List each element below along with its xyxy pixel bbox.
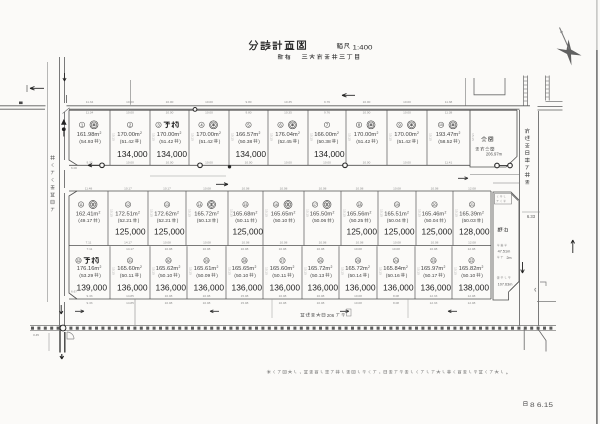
svg-text:15.15: 15.15 (418, 209, 422, 217)
svg-text:11.38: 11.38 (445, 100, 453, 104)
svg-text:15.15: 15.15 (417, 267, 421, 275)
svg-text:15.15: 15.15 (270, 133, 274, 141)
svg-text:10.00: 10.00 (205, 160, 213, 164)
svg-text:12.08: 12.08 (468, 187, 476, 191)
svg-text:(50.03: (50.03 (462, 218, 476, 224)
svg-text:(50.04: (50.04 (387, 218, 401, 224)
svg-text:(53.29: (53.29 (79, 273, 93, 279)
svg-text:2: 2 (180, 131, 182, 135)
svg-text:2: 2 (293, 265, 295, 269)
svg-text:170.00m: 170.00m (354, 132, 377, 138)
svg-text:10.00: 10.00 (166, 111, 174, 115)
svg-text:(52.45: (52.45 (278, 139, 292, 145)
svg-text:9.80: 9.80 (245, 111, 251, 115)
svg-text:9.76: 9.76 (324, 111, 330, 115)
svg-text:9.76: 9.76 (324, 100, 330, 104)
svg-text:(51.42: (51.42 (120, 139, 134, 145)
svg-text:15.15: 15.15 (110, 209, 114, 217)
svg-text:2: 2 (482, 265, 484, 269)
svg-text:139,000: 139,000 (77, 283, 108, 293)
svg-text:(50.11: (50.11 (235, 218, 249, 224)
svg-text:128,000: 128,000 (459, 227, 490, 237)
svg-text:(50.10: (50.10 (234, 273, 248, 279)
svg-text:2: 2 (100, 265, 102, 269)
svg-text:125,000: 125,000 (422, 227, 453, 237)
svg-text:12: 12 (126, 203, 130, 207)
svg-text:2: 2 (368, 265, 370, 269)
svg-text:(50.11: (50.11 (120, 273, 134, 279)
svg-text:12.08: 12.08 (468, 301, 476, 305)
svg-text:10.00: 10.00 (205, 100, 213, 104)
svg-text:2: 2 (417, 131, 419, 135)
svg-text:(50.25: (50.25 (349, 218, 363, 224)
svg-text:176.04m: 176.04m (275, 132, 298, 138)
svg-text:165.60m: 165.60m (117, 266, 140, 272)
svg-text:134,000: 134,000 (236, 149, 267, 159)
svg-text:165.51m: 165.51m (384, 212, 407, 218)
svg-text:23: 23 (432, 259, 436, 263)
svg-text:14.85: 14.85 (126, 301, 134, 305)
svg-text:22: 22 (470, 259, 474, 263)
svg-text:10.00: 10.00 (363, 111, 371, 115)
svg-text:14: 14 (198, 203, 202, 207)
svg-text:14.17: 14.17 (124, 241, 132, 245)
svg-text:10.08: 10.08 (354, 301, 362, 305)
svg-text:31: 31 (128, 259, 132, 263)
svg-text:134,000: 134,000 (117, 149, 148, 159)
svg-text:15.15: 15.15 (455, 209, 459, 217)
svg-text:10.08: 10.08 (280, 187, 288, 191)
svg-text:15.15: 15.15 (343, 209, 347, 217)
svg-text:10.08: 10.08 (241, 247, 249, 251)
svg-text:14.85: 14.85 (126, 294, 134, 298)
svg-text:10.00: 10.00 (403, 100, 411, 104)
svg-text:47.51m: 47.51m (498, 250, 511, 254)
svg-text:2: 2 (177, 211, 179, 215)
svg-text:165.39m: 165.39m (459, 212, 482, 218)
svg-text:10.08: 10.08 (317, 294, 325, 298)
svg-text:10.00: 10.00 (166, 160, 174, 164)
svg-text:15.15: 15.15 (189, 267, 193, 275)
svg-text:8.08: 8.08 (393, 294, 399, 298)
svg-text:13: 13 (165, 203, 169, 207)
svg-text:28: 28 (243, 259, 247, 263)
svg-text:10.00: 10.00 (363, 100, 371, 104)
svg-text:(50.38: (50.38 (238, 139, 252, 145)
svg-text:2: 2 (140, 265, 142, 269)
svg-text:15.15: 15.15 (454, 267, 458, 275)
svg-text:2: 2 (407, 211, 409, 215)
svg-text:10.35: 10.35 (284, 111, 292, 115)
svg-text:10.08: 10.08 (203, 294, 211, 298)
svg-text:165.46m: 165.46m (422, 212, 445, 218)
svg-text:27: 27 (281, 259, 285, 263)
svg-text:2: 2 (179, 265, 181, 269)
svg-text:2: 2 (298, 131, 300, 135)
svg-text:2: 2 (99, 211, 101, 215)
svg-text:10.08: 10.08 (279, 247, 287, 251)
svg-text:125,000: 125,000 (384, 227, 415, 237)
svg-text:(51.42: (51.42 (356, 139, 370, 145)
svg-text:206.97m: 206.97m (486, 152, 503, 157)
svg-text:162.41m: 162.41m (76, 212, 99, 218)
svg-text:7.11: 7.11 (86, 241, 92, 245)
svg-text:161.98m: 161.98m (77, 132, 100, 138)
svg-text:10.08: 10.08 (354, 294, 362, 298)
svg-text:25: 25 (356, 259, 360, 263)
svg-text:12.33: 12.33 (430, 301, 438, 305)
svg-text:15.15: 15.15 (341, 267, 345, 275)
svg-text:11.38: 11.38 (445, 111, 453, 115)
svg-text:30: 30 (167, 259, 171, 263)
svg-text:15.08: 15.08 (241, 301, 249, 305)
svg-text:10.08: 10.08 (280, 241, 288, 245)
svg-text:6.00: 6.00 (71, 166, 77, 170)
svg-text:(50.13: (50.13 (197, 218, 211, 224)
svg-text:(51.42: (51.42 (397, 139, 411, 145)
svg-text:10.08: 10.08 (430, 247, 438, 251)
svg-text:(54.93: (54.93 (79, 139, 93, 145)
svg-text:10.08: 10.08 (279, 301, 287, 305)
svg-text:(50.04: (50.04 (424, 218, 438, 224)
svg-text:10.08: 10.08 (203, 247, 211, 251)
svg-text:10.08: 10.08 (431, 241, 439, 245)
svg-text:15.15: 15.15 (191, 133, 195, 141)
svg-text:15.15: 15.15 (310, 133, 314, 141)
svg-text:10.08: 10.08 (203, 187, 211, 191)
svg-text:9.80: 9.80 (245, 100, 251, 104)
svg-text:15.08: 15.08 (241, 294, 249, 298)
svg-text:15.15: 15.15 (152, 267, 156, 275)
svg-text:10.08: 10.08 (242, 241, 250, 245)
svg-text:15.15: 15.15 (265, 209, 269, 217)
svg-text:8 6.15: 8 6.15 (530, 403, 554, 409)
svg-text:10.08: 10.08 (203, 241, 211, 245)
svg-text:10.08: 10.08 (165, 301, 173, 305)
svg-text:2: 2 (370, 211, 372, 215)
svg-text:2: 2 (100, 131, 102, 135)
svg-text:170.00m: 170.00m (157, 132, 180, 138)
svg-text:15.15: 15.15 (429, 133, 433, 141)
svg-text:1:400: 1:400 (353, 44, 373, 51)
svg-text:136,000: 136,000 (194, 283, 225, 293)
svg-text:10.08: 10.08 (242, 187, 250, 191)
svg-text:(50.10: (50.10 (158, 273, 172, 279)
svg-text:10.08: 10.08 (165, 247, 173, 251)
svg-text:(50.17: (50.17 (423, 273, 437, 279)
svg-text:7.11: 7.11 (87, 247, 93, 251)
svg-text:9.33: 9.33 (86, 294, 92, 298)
svg-text:(51.42: (51.42 (159, 139, 173, 145)
svg-text:(49.17: (49.17 (78, 218, 92, 224)
svg-text:(58.52: (58.52 (438, 139, 452, 145)
svg-text:10.00: 10.00 (205, 111, 213, 115)
svg-text:12.08: 12.08 (468, 241, 476, 245)
svg-text:(50.38: (50.38 (317, 139, 331, 145)
svg-text:2: 2 (217, 211, 219, 215)
svg-text:165.65m: 165.65m (232, 266, 255, 272)
svg-text:10.00: 10.00 (126, 111, 134, 115)
svg-text:(50.10: (50.10 (461, 273, 475, 279)
svg-text:8.08: 8.08 (393, 301, 399, 305)
svg-text:176.16m: 176.16m (77, 266, 100, 272)
svg-text:(50.10: (50.10 (273, 218, 287, 224)
svg-text:6.33: 6.33 (527, 214, 536, 219)
svg-text:2: 2 (255, 265, 257, 269)
svg-text:2: 2 (333, 211, 335, 215)
svg-text:136,000: 136,000 (383, 283, 414, 293)
svg-text:10.00: 10.00 (166, 100, 174, 104)
svg-text:15.15: 15.15 (112, 267, 116, 275)
svg-text:125,000: 125,000 (115, 227, 146, 237)
svg-text:(50.14: (50.14 (348, 273, 362, 279)
svg-text:15.15: 15.15 (471, 133, 475, 141)
svg-text:15.15: 15.15 (112, 133, 116, 141)
svg-text:15.15: 15.15 (230, 209, 234, 217)
svg-text:165.72m: 165.72m (194, 212, 217, 218)
svg-text:10.08: 10.08 (317, 247, 325, 251)
svg-text:136,000: 136,000 (421, 283, 452, 293)
svg-text:125,000: 125,000 (347, 227, 378, 237)
svg-text:24: 24 (394, 259, 398, 263)
svg-text:165.72m: 165.72m (308, 266, 331, 272)
svg-text:11: 11 (79, 203, 83, 207)
svg-text:6.67: 6.67 (71, 290, 77, 294)
svg-text:17: 17 (313, 203, 317, 207)
svg-text:165.97m: 165.97m (421, 266, 444, 272)
svg-text:2: 2 (138, 211, 140, 215)
svg-text:11.34: 11.34 (86, 111, 94, 115)
svg-text:12.08: 12.08 (468, 294, 476, 298)
svg-text:10.08: 10.08 (319, 241, 327, 245)
svg-text:2: 2 (219, 131, 221, 135)
svg-text:206: 206 (327, 313, 335, 318)
svg-text:0.45: 0.45 (33, 333, 39, 337)
svg-text:136,000: 136,000 (308, 283, 339, 293)
svg-text:10.08: 10.08 (317, 301, 325, 305)
svg-text:2: 2 (377, 131, 379, 135)
svg-text:11.48: 11.48 (85, 187, 93, 191)
svg-text:165.61m: 165.61m (194, 266, 217, 272)
svg-text:170.00m: 170.00m (117, 132, 140, 138)
svg-text:10.00: 10.00 (126, 100, 134, 104)
svg-text:136,000: 136,000 (156, 283, 187, 293)
svg-text:15.15: 15.15 (228, 267, 232, 275)
svg-text:10.00: 10.00 (363, 160, 371, 164)
svg-text:10.08: 10.08 (354, 247, 362, 251)
svg-text:2: 2 (217, 265, 219, 269)
svg-text:10.17: 10.17 (163, 187, 171, 191)
svg-text:2: 2 (294, 211, 296, 215)
svg-text:2: 2 (482, 211, 484, 215)
svg-text:26: 26 (319, 259, 323, 263)
svg-text:11.41: 11.41 (445, 160, 453, 164)
svg-text:15.15: 15.15 (380, 209, 384, 217)
svg-text:136,000: 136,000 (270, 283, 301, 293)
svg-text:10.08: 10.08 (392, 247, 400, 251)
svg-text:125,000: 125,000 (233, 227, 264, 237)
svg-text:2: 2 (459, 131, 461, 135)
svg-text:165.62m: 165.62m (156, 266, 179, 272)
svg-text:(50.11: (50.11 (272, 273, 286, 279)
svg-text:165.68m: 165.68m (233, 212, 256, 218)
svg-text:2: 2 (444, 265, 446, 269)
svg-text:(52.21: (52.21 (157, 218, 171, 224)
svg-text:2: 2 (445, 211, 447, 215)
svg-text:(50.06: (50.06 (312, 218, 326, 224)
svg-text:2: 2 (337, 131, 339, 135)
svg-text:9.33: 9.33 (86, 301, 92, 305)
svg-text:193.47m: 193.47m (436, 132, 459, 138)
svg-text:15.15: 15.15 (379, 267, 383, 275)
svg-text:2: 2 (406, 265, 408, 269)
svg-text:(50.16: (50.16 (386, 273, 400, 279)
svg-text:10.00: 10.00 (403, 111, 411, 115)
svg-text:172.62m: 172.62m (154, 212, 177, 218)
svg-text:15.15: 15.15 (265, 267, 269, 275)
svg-text:170.00m: 170.00m (394, 132, 417, 138)
svg-text:136,000: 136,000 (117, 283, 148, 293)
svg-text:2: 2 (259, 131, 261, 135)
svg-text:10.00: 10.00 (284, 160, 292, 164)
svg-text:15.15: 15.15 (389, 133, 393, 141)
svg-text:29: 29 (205, 259, 209, 263)
svg-text:10.00: 10.00 (126, 160, 134, 164)
svg-text:20: 20 (433, 203, 437, 207)
svg-text:10.08: 10.08 (431, 187, 439, 191)
svg-text:2: 2 (140, 131, 142, 135)
svg-text:165.82m: 165.82m (459, 266, 482, 272)
svg-text:125,000: 125,000 (154, 227, 185, 237)
svg-text:172.51m: 172.51m (115, 212, 138, 218)
svg-text:(52.21: (52.21 (118, 218, 132, 224)
svg-text:165.84m: 165.84m (383, 266, 406, 272)
svg-text:10.08: 10.08 (393, 187, 401, 191)
svg-text:12.33: 12.33 (430, 294, 438, 298)
svg-text:10.08: 10.08 (203, 301, 211, 305)
svg-text:170.00m: 170.00m (196, 132, 219, 138)
svg-text:10.00: 10.00 (403, 160, 411, 164)
svg-text:134,000: 134,000 (314, 149, 345, 159)
svg-text:10.08: 10.08 (393, 241, 401, 245)
svg-text:166.00m: 166.00m (314, 132, 337, 138)
svg-text:10.17: 10.17 (124, 187, 132, 191)
svg-text:10.08: 10.08 (356, 241, 364, 245)
svg-text:166.57m: 166.57m (236, 132, 259, 138)
svg-text:165.60m: 165.60m (270, 266, 293, 272)
svg-text:10.35: 10.35 (284, 100, 292, 104)
svg-text:15: 15 (244, 203, 248, 207)
svg-text:15.15: 15.15 (152, 133, 156, 141)
svg-text:18: 18 (358, 203, 362, 207)
svg-text:32: 32 (77, 259, 81, 263)
svg-text:136,000: 136,000 (345, 283, 376, 293)
svg-text:10.08: 10.08 (165, 294, 173, 298)
svg-text:(51.42: (51.42 (199, 139, 213, 145)
svg-text:10.00: 10.00 (323, 160, 331, 164)
svg-text:165.50m: 165.50m (310, 212, 333, 218)
svg-text:165.56m: 165.56m (347, 212, 370, 218)
svg-text:136,000: 136,000 (232, 283, 263, 293)
svg-text:15.15: 15.15 (188, 209, 192, 217)
svg-text:2: 2 (331, 265, 333, 269)
svg-text:12.08: 12.08 (468, 247, 476, 251)
svg-text:10.00: 10.00 (245, 160, 253, 164)
svg-text:2: 2 (256, 211, 258, 215)
svg-text:16: 16 (274, 203, 278, 207)
svg-text:15.15: 15.15 (348, 133, 352, 141)
svg-text:14.17: 14.17 (126, 247, 134, 251)
svg-text:15.15: 15.15 (150, 209, 154, 217)
svg-text:10: 10 (439, 123, 443, 127)
svg-text:15.15: 15.15 (231, 133, 235, 141)
svg-text:165.65m: 165.65m (271, 212, 294, 218)
svg-text:134,000: 134,000 (157, 149, 188, 159)
svg-text:2m: 2m (507, 256, 512, 260)
svg-text:15.15: 15.15 (304, 267, 308, 275)
svg-text:10.08: 10.08 (356, 187, 364, 191)
svg-text:10.08: 10.08 (319, 187, 327, 191)
svg-text:21: 21 (470, 203, 474, 207)
svg-text:10.08: 10.08 (279, 294, 287, 298)
svg-text:19: 19 (395, 203, 399, 207)
svg-text:(50.13: (50.13 (310, 273, 324, 279)
svg-text:(50.09: (50.09 (196, 273, 210, 279)
svg-text:107.63m: 107.63m (498, 283, 513, 287)
svg-text:11.34: 11.34 (86, 100, 94, 104)
svg-text:138,000: 138,000 (459, 283, 490, 293)
svg-text:10.08: 10.08 (163, 241, 171, 245)
svg-text:165.72m: 165.72m (345, 266, 368, 272)
svg-text:15.15: 15.15 (306, 209, 310, 217)
